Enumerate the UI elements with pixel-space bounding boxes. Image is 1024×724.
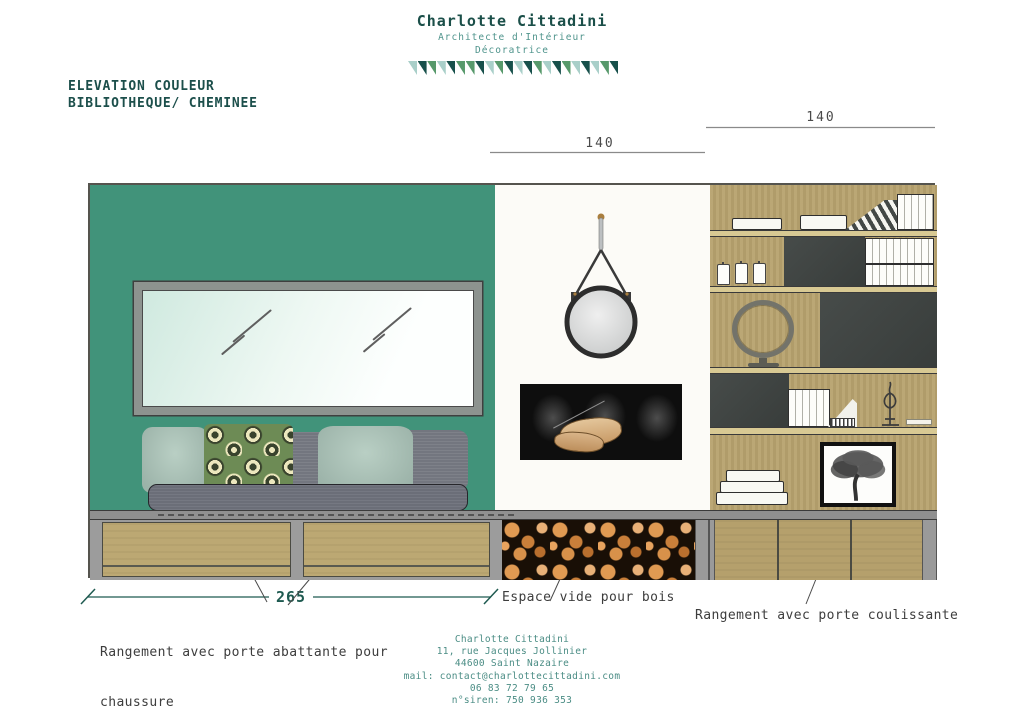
banner-triangle-icon xyxy=(437,61,446,75)
dark-panel xyxy=(710,374,789,427)
sage-pillow xyxy=(318,426,413,493)
elevation-drawing xyxy=(88,183,935,578)
banner-triangle-icon xyxy=(542,61,551,75)
dimension-right-label: 140 xyxy=(781,110,861,125)
standing-books xyxy=(788,389,830,427)
candle-jar xyxy=(717,264,730,285)
fireplace-insert xyxy=(520,384,682,460)
door-divider xyxy=(850,520,852,580)
banner-triangle-icon xyxy=(590,61,599,75)
banner-triangle-icon xyxy=(571,61,580,75)
dimension-bottom-label: 265 xyxy=(267,588,315,606)
footer-address-1: 11, rue Jacques Jollinier xyxy=(0,646,1024,658)
door-divider xyxy=(777,520,779,580)
fire-glow xyxy=(636,394,678,442)
mirror-reflection-stroke xyxy=(372,307,411,340)
contact-footer: Charlotte Cittadini 11, rue Jacques Joll… xyxy=(0,634,1024,707)
banner-triangle-icon xyxy=(427,61,436,75)
leaning-books xyxy=(845,200,900,230)
floral-pillow xyxy=(204,424,293,493)
flat-book xyxy=(800,215,847,230)
banner-triangle-icon xyxy=(418,61,427,75)
cabinet-post xyxy=(695,520,709,580)
cabinet-post xyxy=(922,520,937,580)
note-wood-space: Espace vide pour bois xyxy=(502,590,675,607)
banner-triangle-icon xyxy=(494,61,503,75)
tree-art-frame xyxy=(820,442,896,507)
banner-triangle-icon xyxy=(456,61,465,75)
drop-front-door xyxy=(303,522,490,577)
banner-triangle-icon xyxy=(504,61,513,75)
footer-email: mail: contact@charlottecittadini.com xyxy=(0,671,1024,683)
shelf-board xyxy=(710,286,937,293)
footer-address-2: 44600 Saint Nazaire xyxy=(0,658,1024,670)
sheet-title-line2: BIBLIOTHEQUE/ CHEMINEE xyxy=(68,95,258,112)
bookshelf-section xyxy=(710,185,937,510)
shelf-board xyxy=(710,230,937,237)
candle-jar xyxy=(735,263,748,284)
footer-phone: 06 83 72 79 65 xyxy=(0,683,1024,695)
shoe-cabinet-unit xyxy=(90,520,502,580)
banner-triangle-icon xyxy=(600,61,609,75)
standing-books xyxy=(897,194,934,230)
bench-cushion xyxy=(148,484,468,511)
banner-triangle-icon xyxy=(475,61,484,75)
banner-triangle-icon xyxy=(581,61,590,75)
counter-board xyxy=(90,510,937,520)
sculpture-decor xyxy=(875,379,905,427)
banner-triangle-icon xyxy=(562,61,571,75)
paper-decor xyxy=(906,419,932,425)
banner-triangle-icon xyxy=(466,61,475,75)
banner-triangle-icon xyxy=(533,61,542,75)
brand-header: Charlotte Cittadini Architecte d'Intérie… xyxy=(0,12,1024,56)
brand-subtitle-2: Décoratrice xyxy=(0,45,1024,56)
shelf-board xyxy=(710,427,937,435)
banner-triangle-icon xyxy=(514,61,523,75)
tree-art xyxy=(824,446,892,503)
dimension-middle-label: 140 xyxy=(560,136,640,151)
wall-mirror xyxy=(134,282,482,415)
stacked-book xyxy=(716,492,788,505)
banner-triangle-icon xyxy=(523,61,532,75)
dark-panel xyxy=(820,293,937,367)
standing-books-row xyxy=(865,238,934,286)
banner-triangle-icon xyxy=(408,61,417,75)
brand-subtitle-1: Architecte d'Intérieur xyxy=(0,32,1024,43)
triangle-banner xyxy=(408,61,622,75)
shelf-board xyxy=(710,367,937,374)
mirror-reflection-stroke xyxy=(221,335,245,356)
book-pages xyxy=(830,418,855,427)
cabinet-post xyxy=(709,520,715,580)
banner-triangle-icon xyxy=(485,61,494,75)
flat-book xyxy=(732,218,782,230)
banner-triangle-icon xyxy=(446,61,455,75)
dark-panel xyxy=(784,237,865,286)
ring-decor xyxy=(732,300,794,358)
sliding-cabinet-unit xyxy=(709,520,937,580)
firewood-storage xyxy=(502,520,695,580)
drop-front-door xyxy=(102,522,291,577)
sheet-title-line1: ELEVATION COULEUR xyxy=(68,78,258,95)
fireplace-wall-section xyxy=(495,185,710,510)
footer-name: Charlotte Cittadini xyxy=(0,634,1024,646)
banner-triangle-icon xyxy=(552,61,561,75)
candle-jar xyxy=(753,263,766,284)
banner-triangle-icon xyxy=(609,61,618,75)
elevation-sheet: Charlotte Cittadini Architecte d'Intérie… xyxy=(0,0,1024,724)
footer-siren: n°siren: 750 936 353 xyxy=(0,695,1024,707)
green-wall-section xyxy=(90,185,495,510)
brand-title: Charlotte Cittadini xyxy=(0,12,1024,30)
mirror-reflection-stroke xyxy=(232,309,271,342)
sheet-title: ELEVATION COULEUR BIBLIOTHEQUE/ CHEMINEE xyxy=(68,78,258,112)
note-sliding-storage: Rangement avec porte coulissante xyxy=(695,608,958,625)
hanging-round-mirror xyxy=(556,212,646,362)
